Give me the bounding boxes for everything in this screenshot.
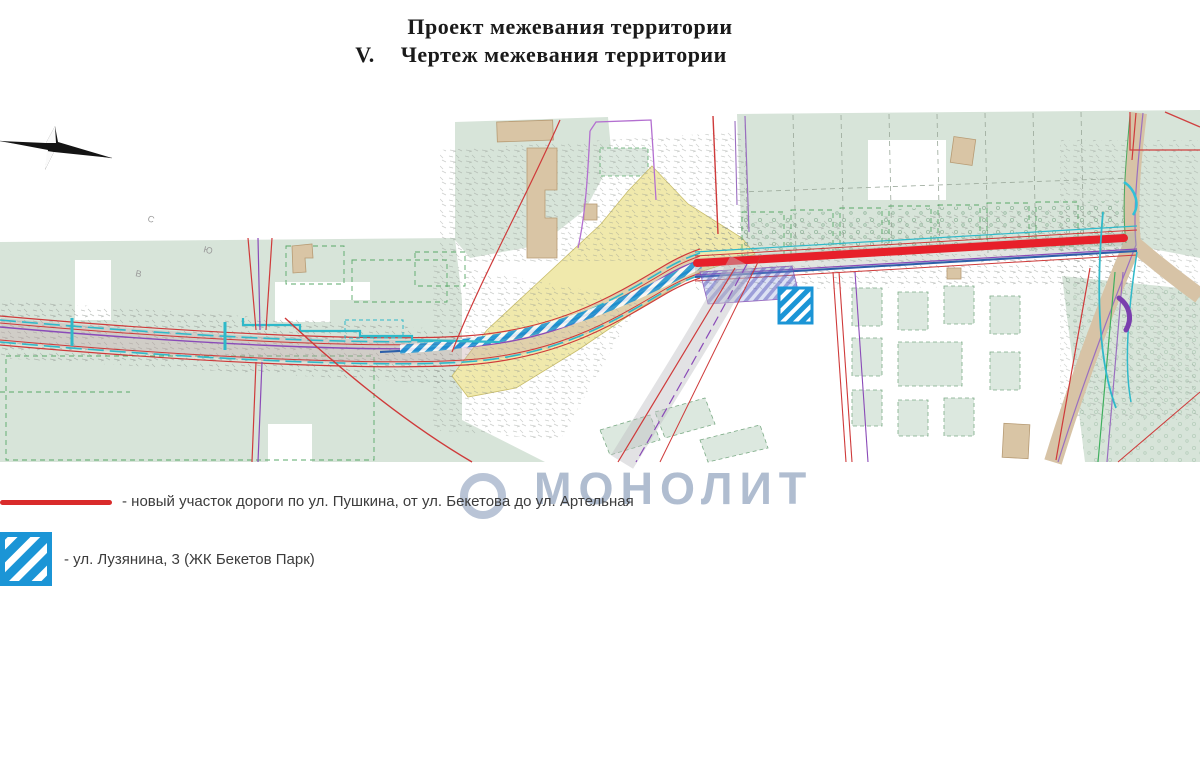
document-page: Проект межевания территории V.Чертеж меж…: [0, 0, 1200, 773]
compass-rose-icon: [0, 115, 130, 185]
document-header: Проект межевания территории V.Чертеж меж…: [0, 10, 1140, 68]
legend-item-new-road: - новый участок дороги по ул. Пушкина, о…: [0, 494, 634, 511]
legend-label-new-road: - новый участок дороги по ул. Пушкина, о…: [122, 493, 634, 510]
blue-hatched-square-swatch: [0, 532, 52, 586]
page-title: Проект межевания территории: [0, 14, 1140, 40]
territory-map: С Ю В МОНОЛИТ: [0, 95, 1200, 480]
cadastral-map-drawing: С Ю В: [0, 95, 1200, 480]
legend-item-parcel: - ул. Лузянина, 3 (ЖК Бекетов Парк): [0, 532, 315, 586]
section-number: V.: [355, 42, 375, 67]
legend-label-parcel: - ул. Лузянина, 3 (ЖК Бекетов Парк): [64, 551, 315, 568]
section-title: Чертеж межевания территории: [401, 42, 727, 67]
parcel-marker-blue-hatched: [779, 288, 812, 323]
red-road-line-swatch: [0, 500, 112, 505]
compass-north-label: С: [146, 213, 156, 225]
page-subtitle: V.Чертеж межевания территории: [0, 42, 1082, 68]
